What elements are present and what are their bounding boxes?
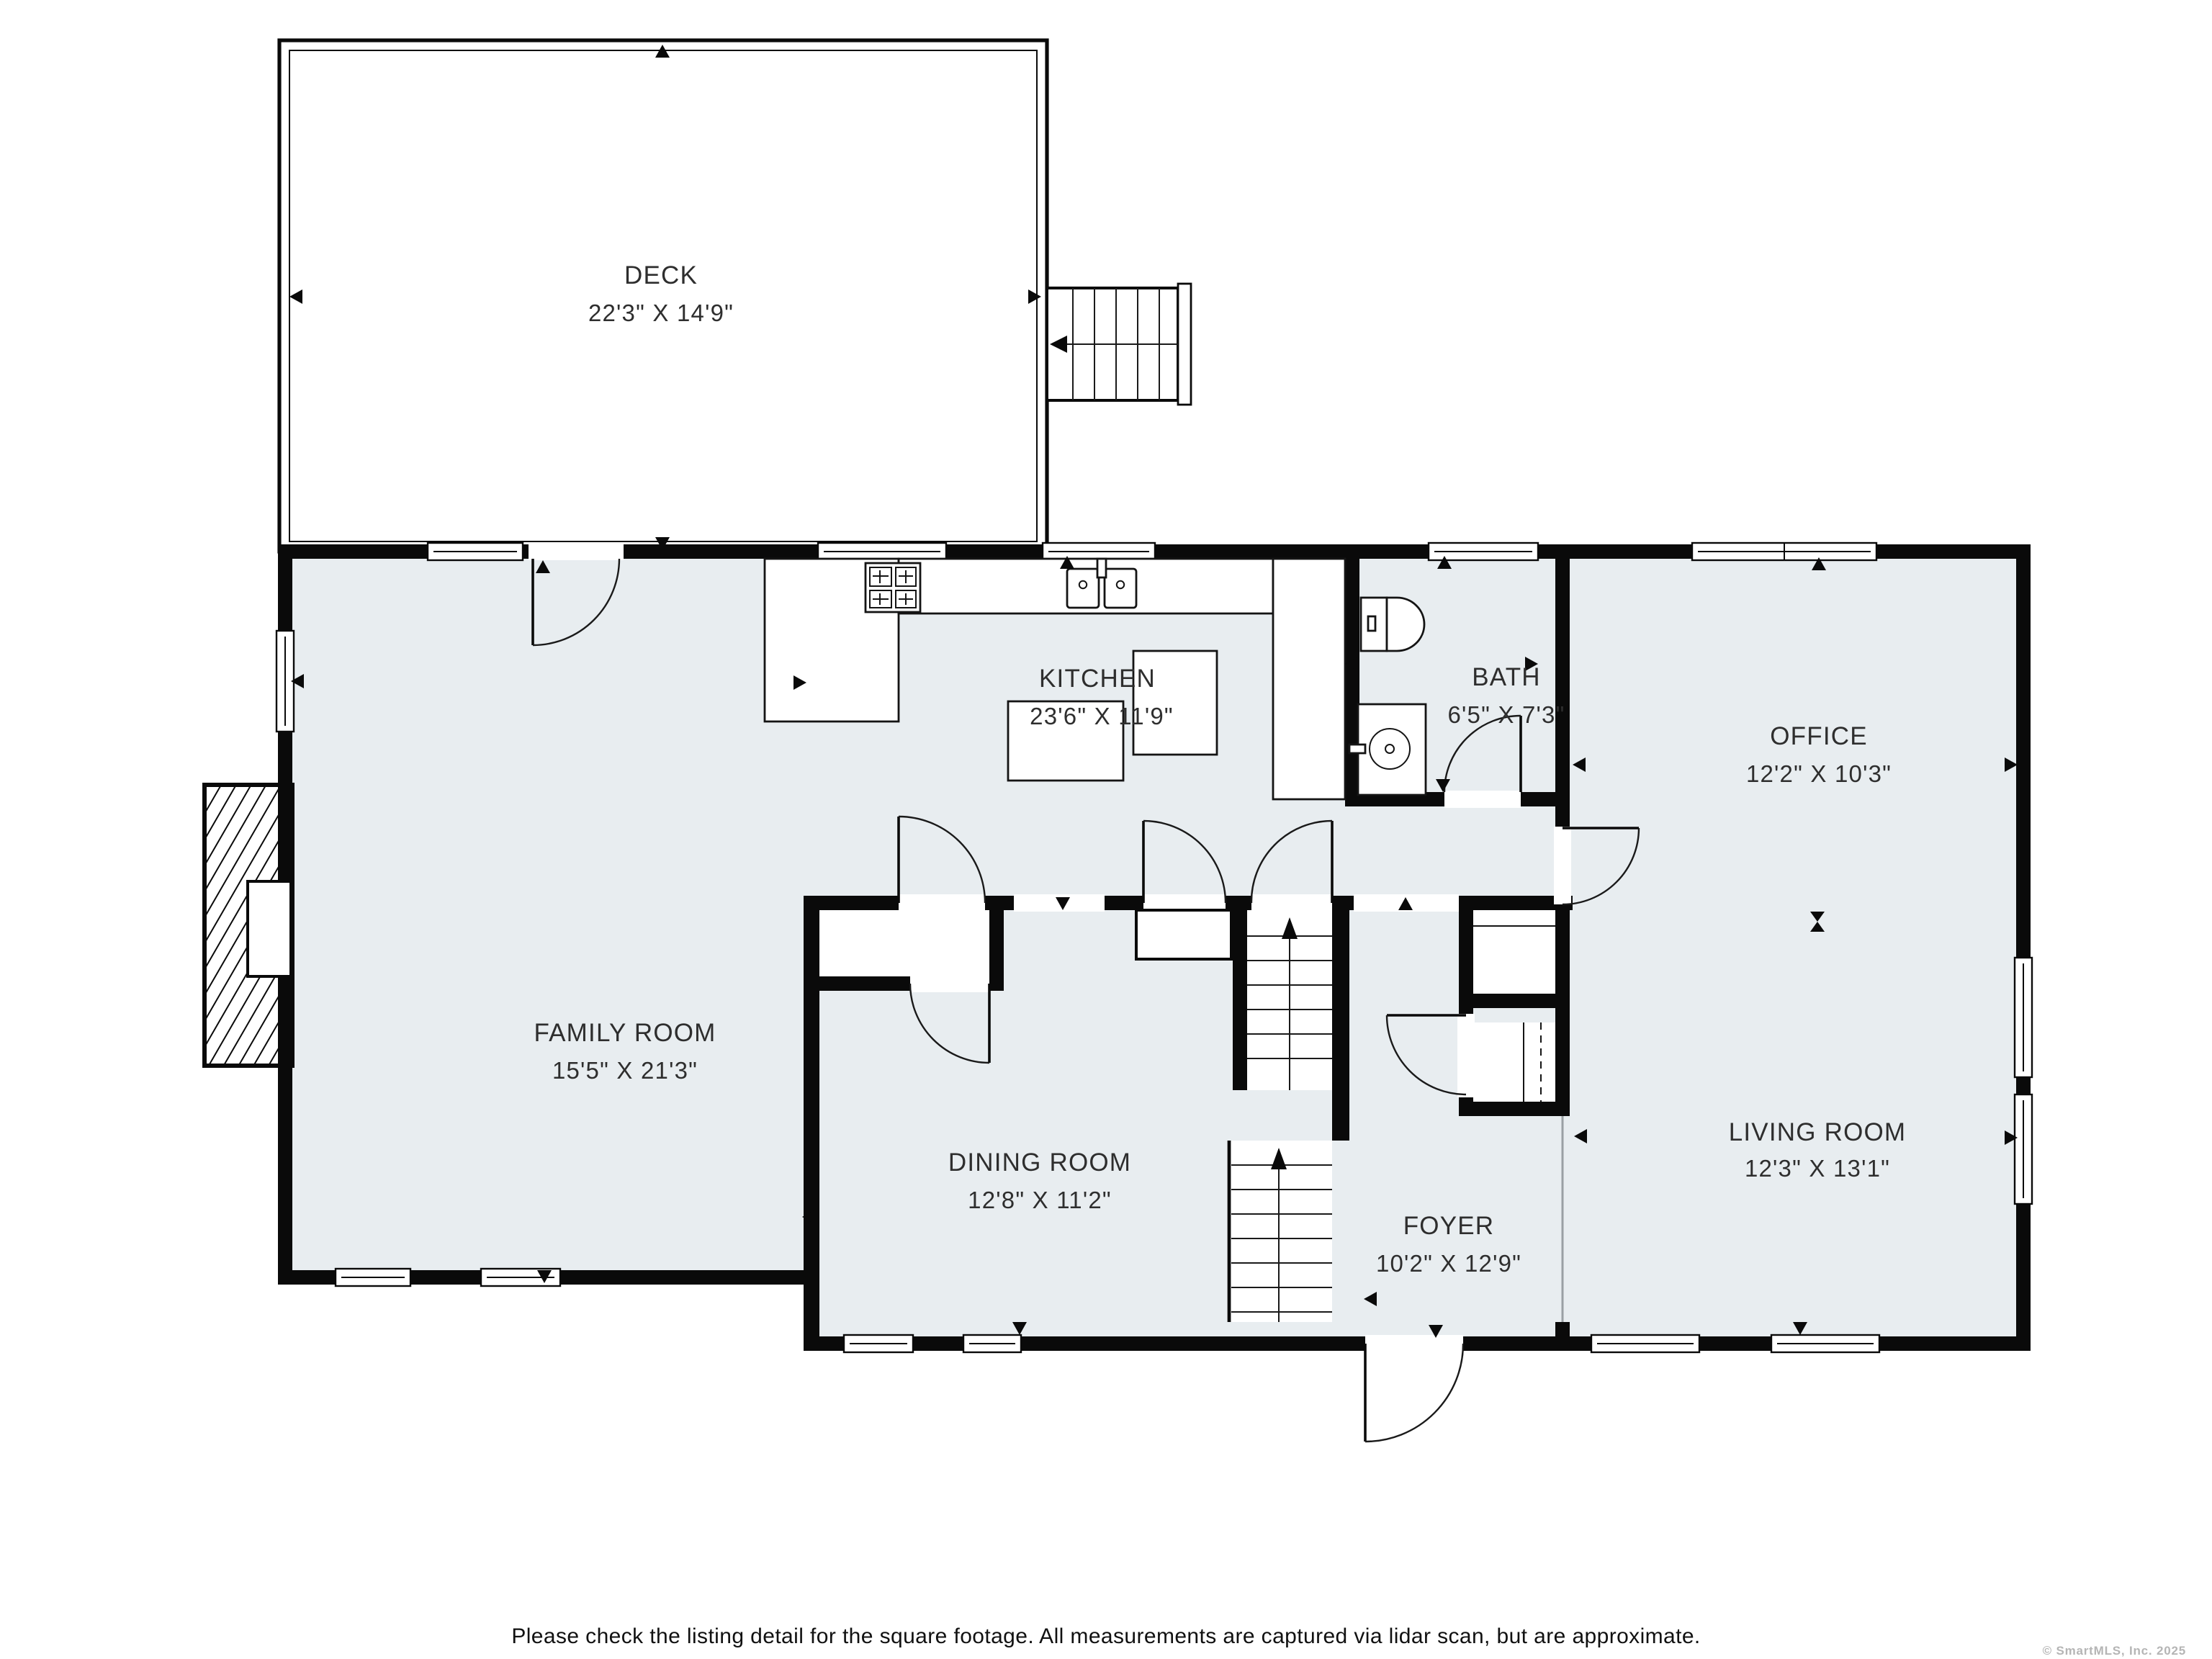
living-window-b2 xyxy=(1771,1335,1879,1352)
deck-stairs-icon xyxy=(1047,284,1191,405)
office-dims: 12'2" X 10'3" xyxy=(1746,760,1892,787)
dining-closet xyxy=(819,910,989,976)
stove-icon xyxy=(866,563,920,612)
copyright: © SmartMLS, Inc. 2025 xyxy=(2043,1644,2186,1658)
foyer-dims: 10'2" X 12'9" xyxy=(1376,1250,1521,1277)
footer-disclaimer: Please check the listing detail for the … xyxy=(511,1624,1700,1648)
deck-label: DECK xyxy=(624,261,698,289)
kitchen-window-1 xyxy=(818,543,946,560)
front-door xyxy=(1365,1344,1463,1442)
family-room-dims: 15'5" X 21'3" xyxy=(552,1057,698,1084)
deck-dims: 22'3" X 14'9" xyxy=(588,300,734,326)
living-window-b1 xyxy=(1591,1335,1699,1352)
office-window xyxy=(1692,543,1876,560)
fireplace xyxy=(204,785,292,1066)
bath-label: BATH xyxy=(1472,663,1541,691)
family-room-label: FAMILY ROOM xyxy=(534,1019,716,1047)
kitchen-dims: 23'6" X 11'9" xyxy=(1030,703,1174,729)
kitchen-label: KITCHEN xyxy=(1039,665,1156,693)
kitchen-window-2 xyxy=(1043,543,1155,560)
bath-dims: 6'5" X 7'3" xyxy=(1448,701,1565,728)
deck xyxy=(279,40,1191,552)
office-closet xyxy=(1473,910,1555,994)
living-room-label: LIVING ROOM xyxy=(1729,1118,1907,1146)
dining-window-1 xyxy=(844,1335,913,1352)
dining-room-label: DINING ROOM xyxy=(948,1148,1131,1177)
foyer-closet xyxy=(1473,1022,1555,1102)
office-label: OFFICE xyxy=(1770,722,1868,750)
basement-stair-box xyxy=(1136,910,1231,959)
family-room-window-b1 xyxy=(336,1269,410,1286)
dining-room-dims: 12'8" X 11'2" xyxy=(968,1187,1112,1213)
living-window-r1 xyxy=(2015,958,2032,1077)
foyer-label: FOYER xyxy=(1403,1212,1495,1240)
floor-plan: DECK 22'3" X 14'9" KITCHEN 23'6" X 11'9"… xyxy=(0,0,2212,1659)
dining-window-2 xyxy=(963,1335,1021,1352)
living-room-dims: 12'3" X 13'1" xyxy=(1745,1155,1890,1182)
living-window-r2 xyxy=(2015,1094,2032,1204)
bath-vanity-sink-icon xyxy=(1349,704,1426,795)
family-room-window-top xyxy=(428,543,523,560)
toilet-icon xyxy=(1361,598,1424,651)
